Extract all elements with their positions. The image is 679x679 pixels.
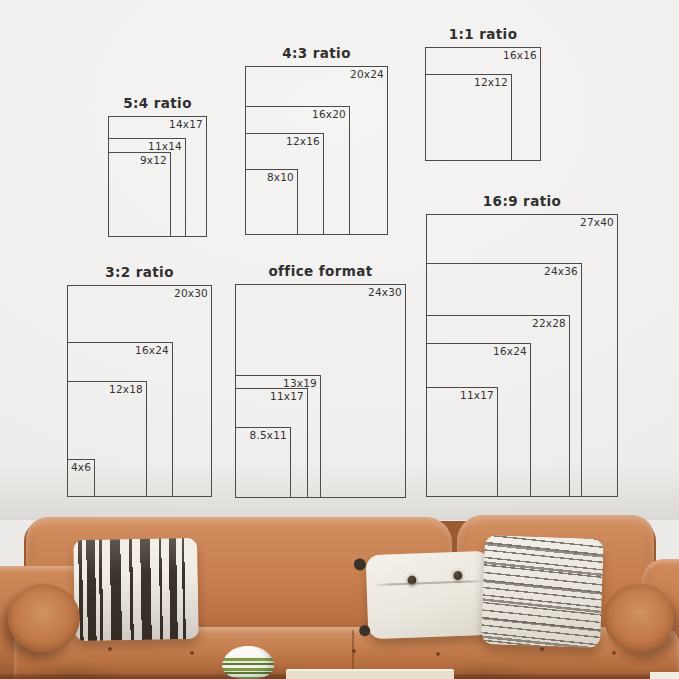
print-size-guide-scene: 5:4 ratio 14x17 11x14 9x12 4:3 ratio 20x… bbox=[0, 0, 679, 679]
size-rect-8x10: 8x10 bbox=[245, 169, 298, 235]
diagram-title: 4:3 ratio bbox=[282, 46, 351, 61]
diagram-title: 1:1 ratio bbox=[449, 27, 518, 42]
size-label: 20x24 bbox=[350, 68, 384, 80]
white-button-lumbar-pillow bbox=[366, 551, 493, 639]
size-label: 12x12 bbox=[474, 76, 508, 88]
pillow-button bbox=[453, 571, 462, 580]
diagram-title: 5:4 ratio bbox=[123, 96, 192, 111]
size-label: 12x16 bbox=[286, 135, 320, 147]
size-label: 16x24 bbox=[135, 344, 169, 356]
diagram-title: office format bbox=[268, 264, 372, 279]
size-label: 24x30 bbox=[368, 286, 402, 298]
pillow-button bbox=[407, 575, 416, 584]
diagram-title: 16:9 ratio bbox=[483, 194, 561, 209]
diagram-title: 3:2 ratio bbox=[105, 265, 174, 280]
couch-bolster-right bbox=[604, 584, 674, 652]
size-label: 20x30 bbox=[174, 287, 208, 299]
size-label: 24x36 bbox=[544, 265, 578, 277]
size-rect-9x12: 9x12 bbox=[108, 152, 171, 237]
side-table-corner bbox=[650, 672, 679, 679]
size-label: 9x12 bbox=[140, 154, 167, 166]
green-striped-vase bbox=[222, 646, 274, 679]
couch-bolster-left bbox=[8, 584, 80, 652]
size-label: 11x17 bbox=[460, 389, 494, 401]
wall-shadow bbox=[0, 462, 679, 520]
size-label: 11x14 bbox=[148, 140, 182, 152]
diagram-4-3-ratio: 4:3 ratio 20x24 16x20 12x16 8x10 bbox=[245, 66, 388, 235]
size-rect-12x12: 12x12 bbox=[425, 74, 512, 161]
diagram-5-4-ratio: 5:4 ratio 14x17 11x14 9x12 bbox=[108, 116, 207, 237]
diagram-1-1-ratio: 1:1 ratio 16x16 12x12 bbox=[425, 47, 541, 161]
size-label: 12x18 bbox=[109, 383, 143, 395]
coffee-table-edge bbox=[286, 669, 454, 679]
size-label: 11x17 bbox=[270, 390, 304, 402]
gray-striped-pillow bbox=[481, 535, 604, 648]
size-label: 8x10 bbox=[267, 171, 294, 183]
size-label: 16x20 bbox=[312, 108, 346, 120]
size-label: 27x40 bbox=[580, 216, 614, 228]
black-white-striped-pillow bbox=[73, 538, 199, 641]
size-label: 8.5x11 bbox=[250, 429, 287, 441]
size-label: 16x16 bbox=[503, 49, 537, 61]
diagram-16-9-ratio: 16:9 ratio 27x40 24x36 22x28 16x24 11x17 bbox=[426, 214, 618, 497]
size-label: 14x17 bbox=[169, 118, 203, 130]
size-label: 22x28 bbox=[532, 317, 566, 329]
size-label: 16x24 bbox=[493, 345, 527, 357]
